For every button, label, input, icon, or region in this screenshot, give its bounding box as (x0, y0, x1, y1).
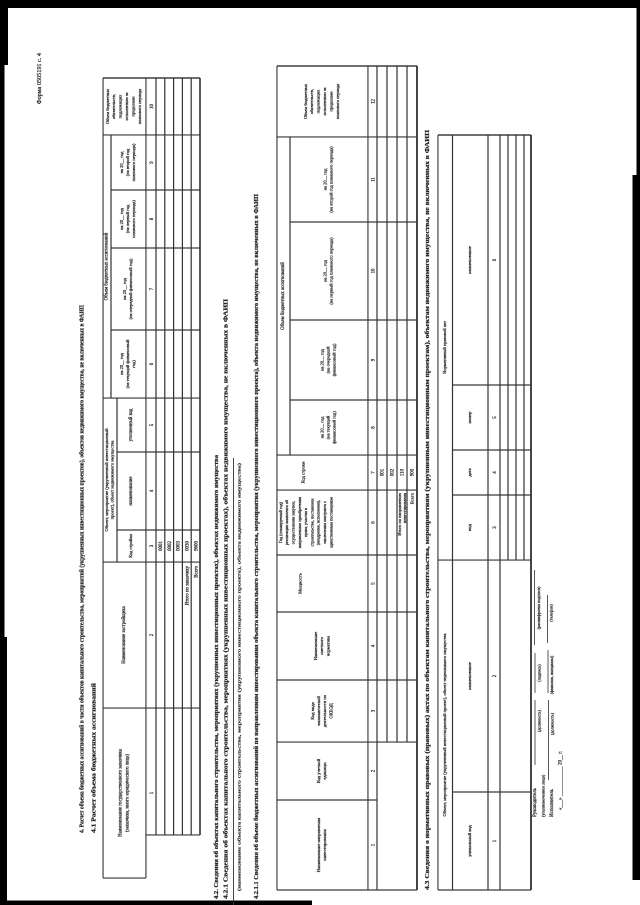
svg-text:финансовый год): финансовый год) (332, 411, 337, 444)
svg-text:(должность): (должность) (537, 709, 542, 732)
svg-text:900: 900 (411, 468, 416, 476)
svg-text:(на очередной финансовый год): (на очередной финансовый год) (128, 258, 133, 319)
svg-text:сметного: сметного (319, 636, 324, 655)
svg-text:Нормативный правовой акт: Нормативный правовой акт (442, 321, 447, 374)
svg-text:(на первый год планового перио: (на первый год планового периода) (329, 237, 334, 305)
svg-text:(на очередной: (на очередной (326, 346, 331, 374)
svg-text:Всего: Всего (410, 492, 415, 504)
svg-text:Итого по заказчику: Итого по заказчику (186, 565, 191, 605)
svg-text:планового периода: планового периода (137, 89, 142, 124)
svg-text:единицы: единицы (322, 762, 327, 779)
svg-text:единственным поставщиком: единственным поставщиком (328, 497, 333, 548)
svg-text:0030: 0030 (186, 541, 191, 551)
svg-text:планового периода): планового периода) (131, 143, 136, 181)
svg-text:Мощность: Мощность (298, 573, 303, 594)
svg-text:0003: 0003 (177, 541, 182, 551)
svg-text:наименование: наименование (467, 662, 472, 690)
svg-text:пределами: пределами (130, 96, 135, 117)
svg-text:исполнению за: исполнению за (322, 87, 327, 115)
svg-text:12: 12 (371, 99, 376, 104)
svg-text:001: 001 (381, 468, 386, 476)
svg-text:Объем бюджетных: Объем бюджетных (105, 88, 110, 124)
svg-text:Исполнитель: Исполнитель (550, 788, 555, 817)
svg-text:002: 002 (391, 468, 396, 476)
svg-text:Наименование застройщика: Наименование застройщика (122, 605, 127, 663)
svg-text:4.3 Сведения о нормативных пра: 4.3 Сведения о нормативных правовых (пра… (424, 130, 431, 890)
svg-text:Год (планируемый год): Год (планируемый год) (278, 501, 283, 543)
svg-text:вид: вид (467, 523, 472, 531)
svg-text:Руководитель: Руководитель (533, 787, 538, 817)
svg-text:Код строки: Код строки (301, 461, 306, 483)
svg-text:номер: номер (467, 411, 472, 424)
svg-text:исполнению за: исполнению за (124, 92, 129, 120)
svg-text:на 20__ год: на 20__ год (319, 348, 324, 371)
svg-text:4.2.1 Сведения об объектах кап: 4.2.1 Сведения об объектах капитального … (223, 299, 230, 899)
svg-text:на 20__ год: на 20__ год (322, 168, 327, 191)
svg-text:4. Расчет объема бюджетных асс: 4. Расчет объема бюджетных ассигнований … (79, 305, 86, 833)
svg-text:Наименование: Наименование (313, 632, 318, 661)
svg-text:экономической: экономической (316, 696, 321, 726)
svg-text:наименование: наименование (467, 246, 472, 274)
svg-text:планового периода: планового периода (335, 84, 340, 119)
svg-text:Код вида: Код вида (310, 702, 315, 720)
svg-text:4.1 Расчет объема бюджетных ас: 4.1 Расчет объема бюджетных ассигнований (91, 682, 98, 833)
svg-text:(должность): (должность) (550, 712, 555, 735)
svg-text:(подпись): (подпись) (537, 664, 542, 682)
svg-text:«___» ____________ 20__ г.: «___» ____________ 20__ г. (559, 751, 564, 810)
svg-text:подлежащих: подлежащих (316, 89, 321, 114)
svg-text:дата: дата (467, 468, 472, 476)
svg-text:на 20__ год: на 20__ год (319, 416, 324, 439)
svg-text:(на текущий финансовый: (на текущий финансовый (125, 339, 130, 388)
svg-text:0002: 0002 (168, 541, 173, 551)
svg-text:Объем бюджетных ассигнований: Объем бюджетных ассигнований (105, 232, 110, 300)
svg-text:(заказчика, иного юридического: (заказчика, иного юридического лица) (125, 754, 130, 832)
svg-text:9600: 9600 (194, 541, 199, 551)
svg-text:на 20__ год: на 20__ год (119, 151, 124, 174)
svg-text:норматива: норматива (325, 636, 330, 656)
svg-text:(на первый год: (на первый год (125, 204, 130, 233)
svg-text:Код учетной: Код учетной (316, 758, 321, 783)
svg-text:11: 11 (371, 177, 376, 182)
svg-text:уточненный код: уточненный код (129, 408, 134, 441)
svg-text:подлежащих: подлежащих (118, 94, 123, 119)
svg-text:на 20__ год: на 20__ год (122, 277, 127, 300)
svg-text:направленные приобретения: направленные приобретения (297, 497, 302, 548)
svg-text:финансовый год): финансовый год) (332, 343, 337, 376)
svg-text:реализации комплекса об: реализации комплекса об (284, 500, 289, 545)
svg-text:10: 10 (150, 104, 155, 109)
svg-text:Объем бюджетных: Объем бюджетных (303, 83, 308, 119)
svg-text:10: 10 (371, 268, 376, 273)
svg-text:Код стройки: Код стройки (128, 533, 133, 557)
svg-text:4.2.1.1 Сведения об объеме бюд: 4.2.1.1 Сведения об объеме бюджетных асс… (253, 194, 260, 899)
svg-text:пределами: пределами (328, 91, 333, 112)
svg-text:ОКВЭД: ОКВЭД (328, 703, 333, 719)
svg-text:инвестирования: инвестирования (322, 828, 327, 860)
svg-text:(расшифровка подписи): (расшифровка подписи) (536, 586, 541, 629)
svg-text:(уполномоченное лицо): (уполномоченное лицо) (541, 774, 546, 817)
svg-text:на 20__ год: на 20__ год (119, 207, 124, 230)
svg-text:на 20__ год: на 20__ год (119, 352, 124, 375)
svg-text:уникальный код: уникальный код (467, 825, 472, 857)
svg-text:110: 110 (401, 468, 406, 476)
svg-text:Наименование направления: Наименование направления (316, 817, 321, 872)
svg-text:год): год) (131, 360, 136, 368)
svg-text:инвестирования: инвестирования (402, 493, 407, 523)
svg-text:0001: 0001 (159, 541, 164, 551)
svg-text:деятельности по: деятельности по (322, 694, 327, 727)
svg-text:(на второй год планового перио: (на второй год планового периода) (329, 146, 334, 213)
svg-text:заключения контракта с: заключения контракта с (322, 501, 327, 544)
svg-text:Всего: Всего (194, 565, 199, 577)
svg-text:планового периода): планового периода) (131, 200, 136, 238)
svg-text:(на второй год: (на второй год (125, 148, 130, 176)
svg-text:наименование: наименование (129, 477, 134, 506)
svg-text:на 20__ год: на 20__ год (322, 259, 327, 282)
svg-text:Наименование государственного: Наименование государственного заказчика (119, 748, 124, 837)
svg-text:Форма 0505191 с. 4: Форма 0505191 с. 4 (36, 53, 43, 104)
svg-text:(телефон): (телефон) (549, 604, 554, 622)
svg-text:4.2. Сведения об объектах капи: 4.2. Сведения об объектах капитального с… (213, 455, 220, 899)
svg-text:(на текущий: (на текущий (326, 415, 331, 439)
svg-text:Объем бюджетных ассигнований: Объем бюджетных ассигнований (281, 262, 286, 330)
